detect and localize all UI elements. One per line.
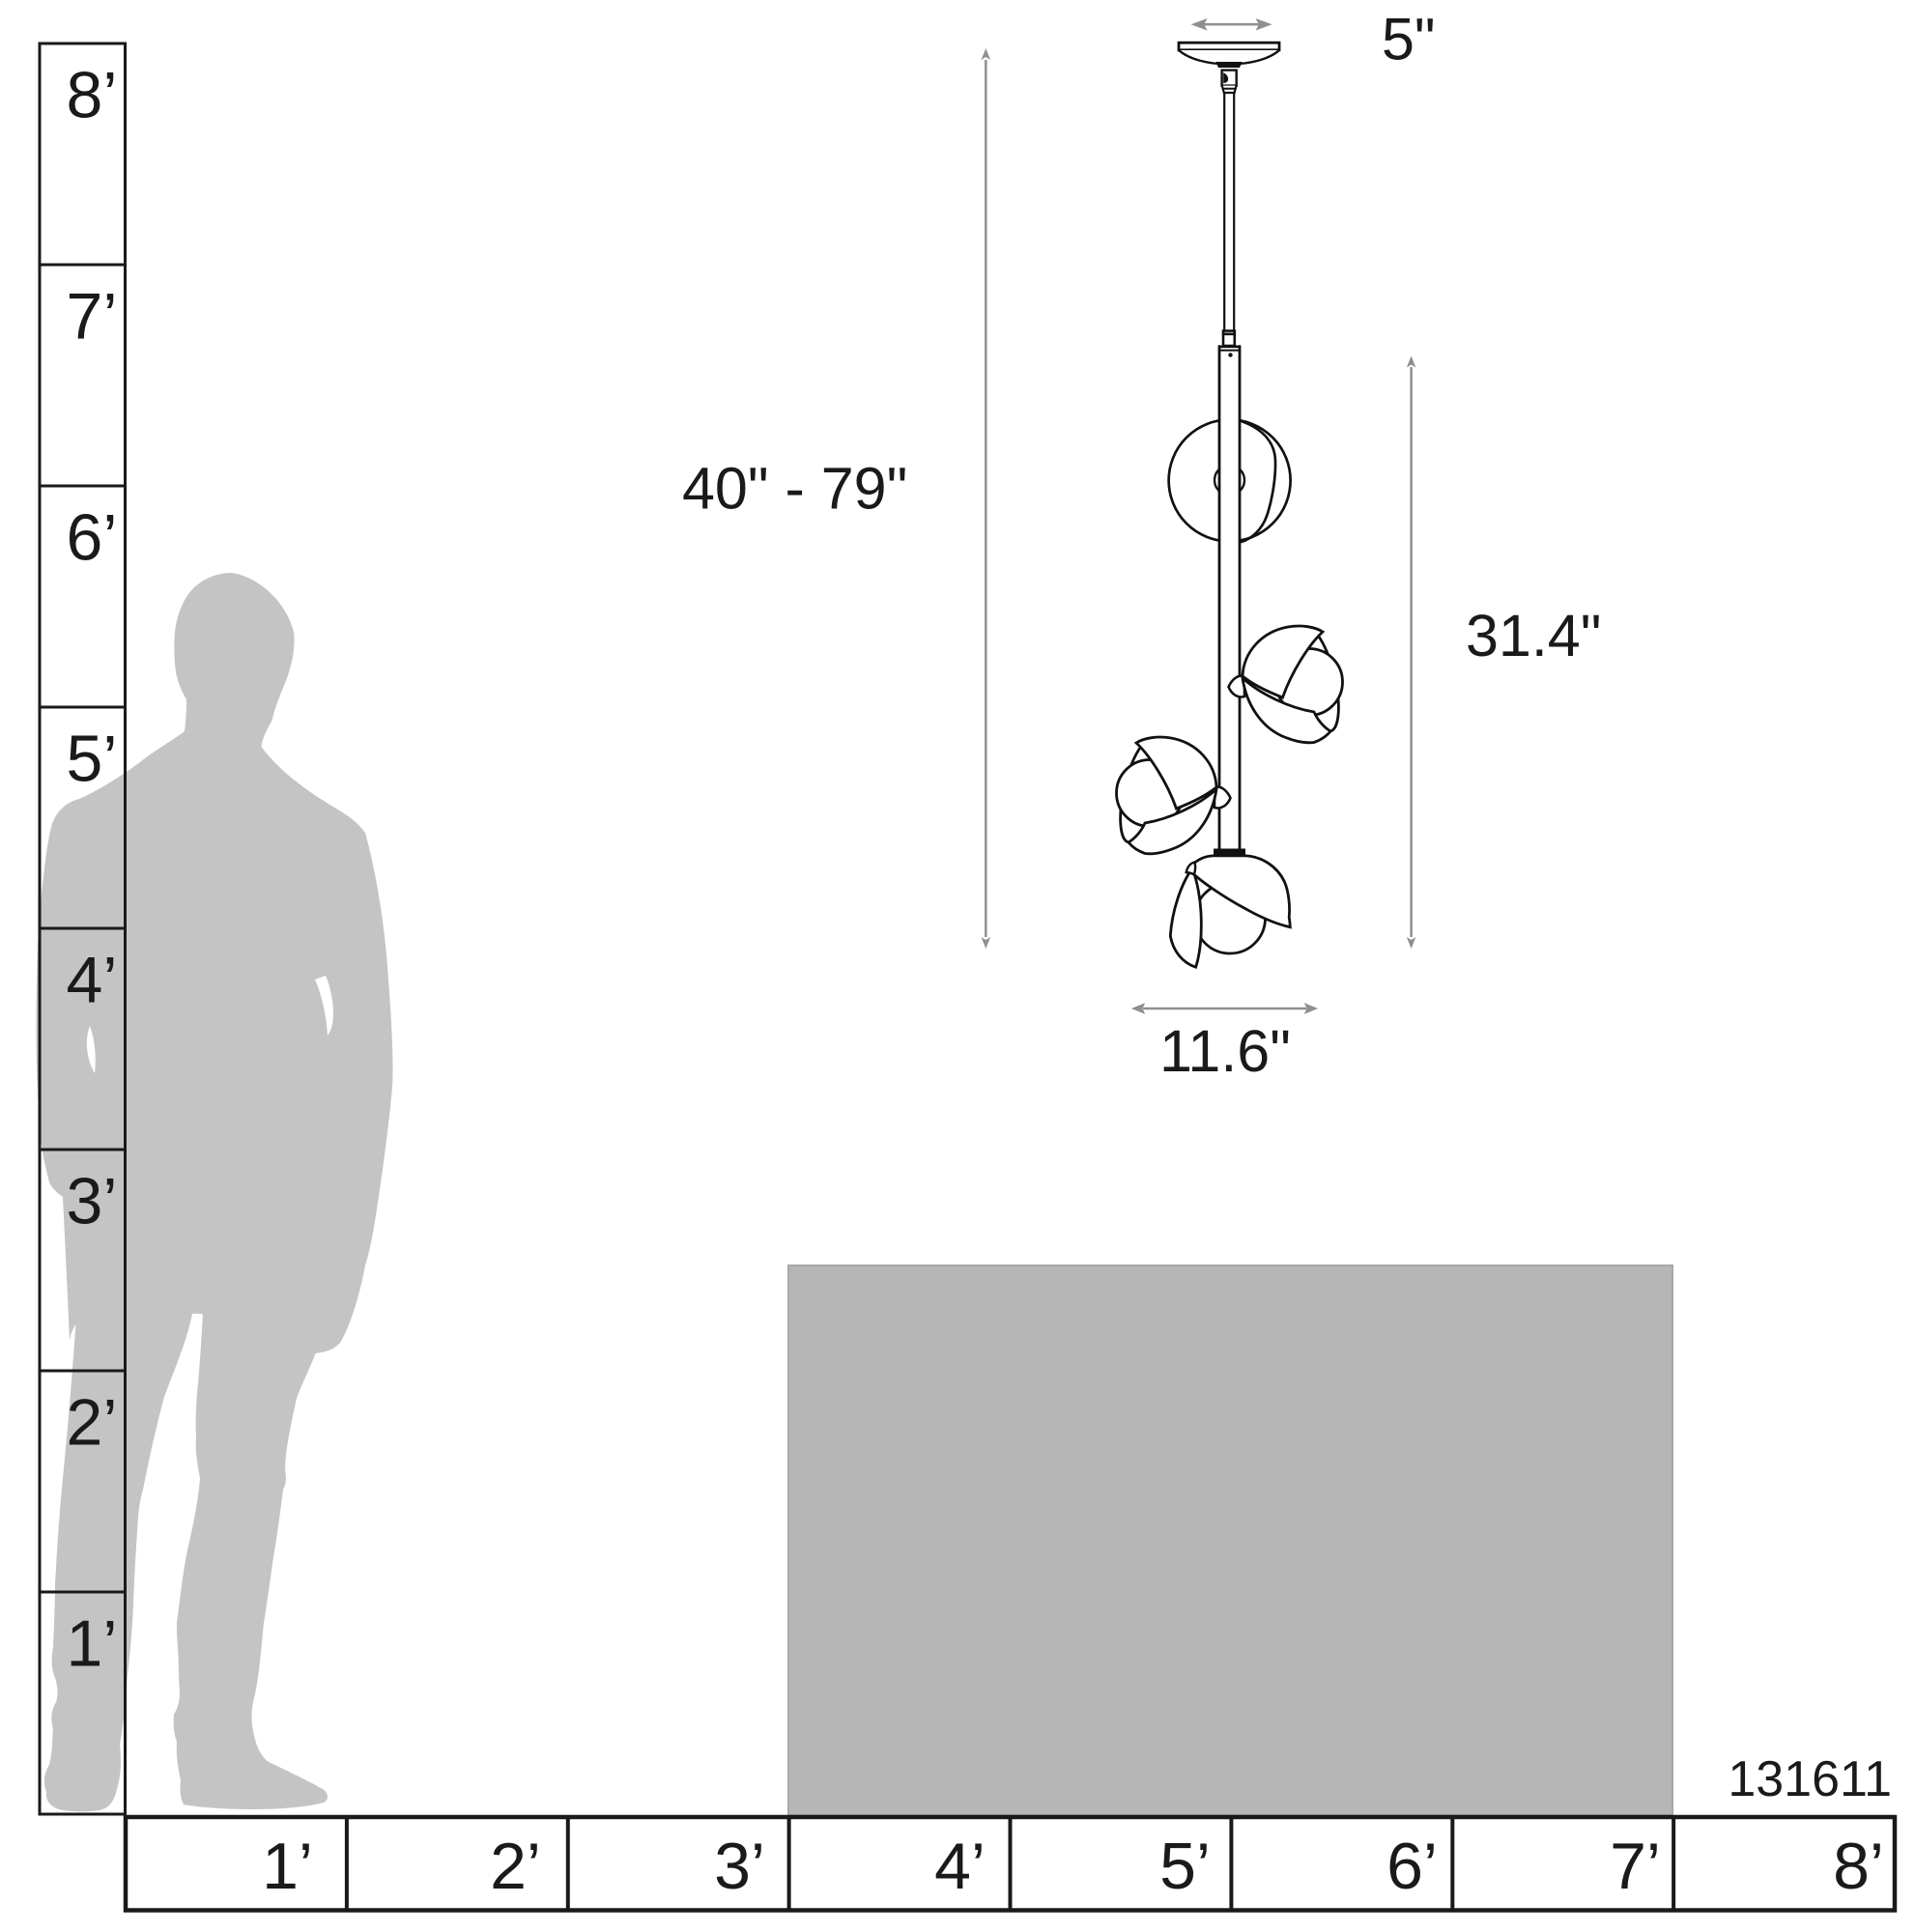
svg-text:31.4": 31.4": [1466, 603, 1601, 668]
svg-text:8’: 8’: [1833, 1830, 1884, 1903]
svg-text:3’: 3’: [67, 1165, 118, 1238]
svg-text:5": 5": [1382, 7, 1436, 72]
svg-text:2’: 2’: [490, 1830, 541, 1903]
svg-text:4’: 4’: [67, 944, 118, 1017]
svg-text:5’: 5’: [1159, 1830, 1211, 1903]
svg-text:8’: 8’: [67, 59, 118, 132]
svg-text:5’: 5’: [67, 723, 118, 796]
svg-text:6’: 6’: [1386, 1830, 1438, 1903]
svg-text:2’: 2’: [67, 1386, 118, 1460]
svg-text:7’: 7’: [67, 280, 118, 354]
svg-text:6’: 6’: [67, 501, 118, 575]
svg-text:7’: 7’: [1610, 1830, 1661, 1903]
svg-text:11.6": 11.6": [1159, 1018, 1291, 1084]
svg-text:4’: 4’: [934, 1830, 986, 1903]
svg-text:40" - 79": 40" - 79": [682, 455, 907, 521]
svg-text:1’: 1’: [67, 1607, 118, 1681]
svg-text:3’: 3’: [714, 1830, 765, 1903]
svg-text:131611: 131611: [1728, 1751, 1892, 1807]
svg-text:1’: 1’: [262, 1830, 313, 1903]
